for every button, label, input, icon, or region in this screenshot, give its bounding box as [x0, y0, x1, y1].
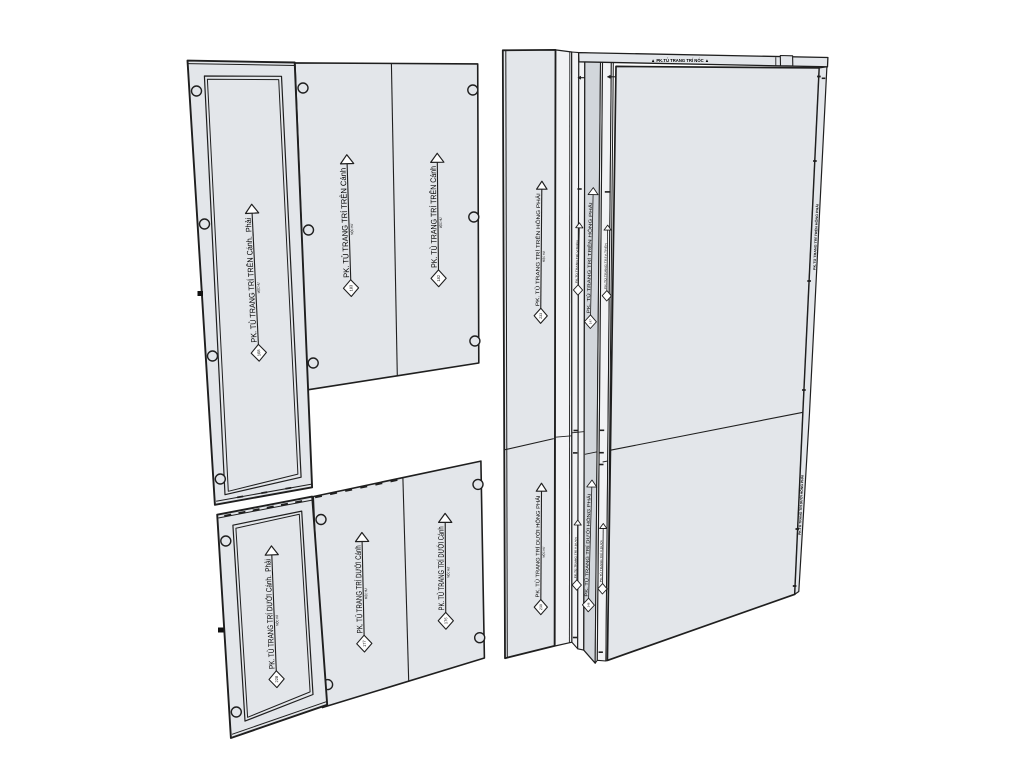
svg-text:PK. TỦ TRANG TRÍ DƯỚI Cánh: PK. TỦ TRANG TRÍ DƯỚI Cánh — [354, 545, 365, 633]
svg-text:147: 147 — [588, 319, 592, 324]
svg-text:230: 230 — [539, 604, 543, 610]
svg-text:MỘC HƯ: MỘC HƯ — [349, 223, 354, 234]
svg-text:PK. TỦ TRANG TRÍ TRÊN Cánh: PK. TỦ TRANG TRÍ TRÊN Cánh — [429, 166, 439, 268]
svg-text:MỘC HƯ: MỘC HƯ — [438, 217, 443, 228]
svg-text:MỘC HƯ: MỘC HƯ — [541, 251, 546, 262]
svg-text:177: 177 — [362, 639, 367, 647]
svg-text:MỘC HƯ: MỘC HƯ — [255, 282, 261, 293]
svg-text:MỘC HƯ: MỘC HƯ — [363, 588, 368, 599]
svg-text:228: 228 — [274, 675, 279, 683]
svg-text:MỘC HƯ: MỘC HƯ — [274, 615, 279, 626]
svg-text:233: 233 — [539, 313, 543, 319]
svg-text:PK. TỦ TRANG TRÍ DƯỚI HÔNG PHẢ: PK. TỦ TRANG TRÍ DƯỚI HÔNG PHẢI — [534, 495, 542, 597]
svg-text:168: 168 — [256, 349, 261, 357]
svg-text:MỘC HƯ: MỘC HƯ — [541, 546, 546, 557]
svg-text:PK. TỦ TRANG TRÍ DƯỚI Cánh: PK. TỦ TRANG TRÍ DƯỚI Cánh — [437, 526, 447, 610]
svg-text:182: 182 — [436, 274, 441, 282]
svg-text:183: 183 — [348, 284, 353, 292]
svg-text:146: 146 — [586, 602, 590, 607]
svg-text:MỘC HƯ: MỘC HƯ — [445, 567, 450, 578]
svg-text:176: 176 — [443, 617, 448, 624]
